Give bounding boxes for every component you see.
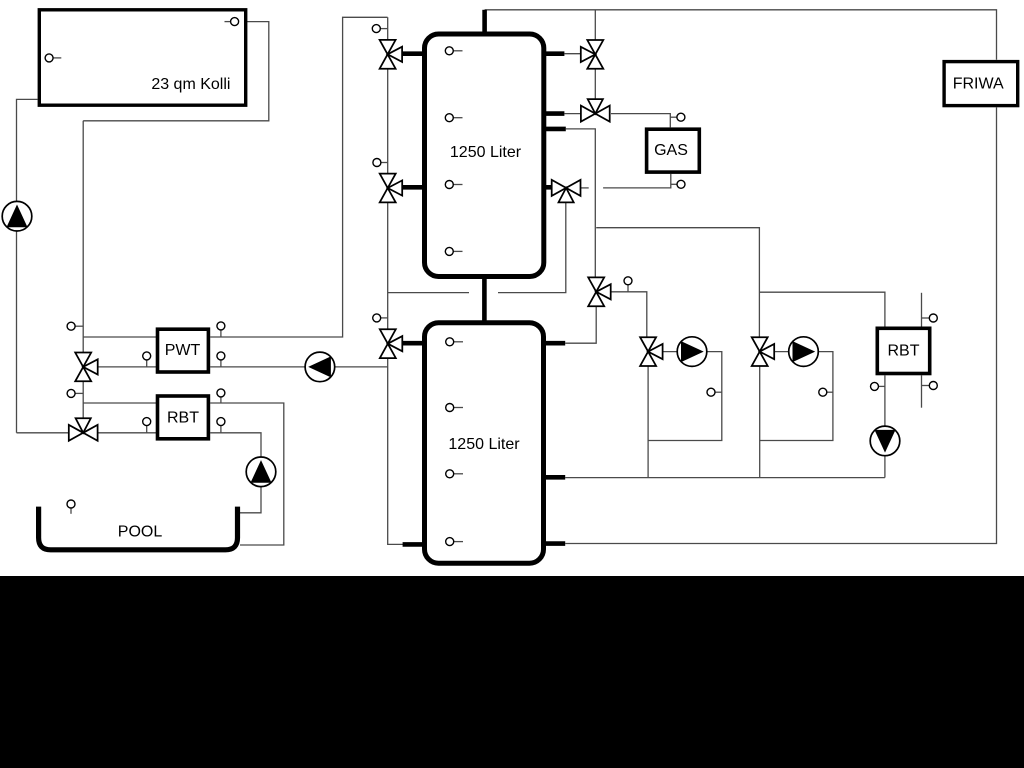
svg-text:23 qm Kolli: 23 qm Kolli — [151, 76, 230, 93]
svg-text:1250 Liter: 1250 Liter — [450, 144, 522, 161]
svg-text:RBT: RBT — [888, 343, 920, 360]
svg-text:PWT: PWT — [165, 342, 201, 359]
svg-text:1250 Liter: 1250 Liter — [448, 436, 520, 453]
svg-text:GAS: GAS — [654, 142, 688, 159]
svg-text:RBT: RBT — [167, 410, 199, 427]
svg-text:FRIWA: FRIWA — [953, 76, 1004, 93]
svg-text:POOL: POOL — [118, 523, 163, 540]
